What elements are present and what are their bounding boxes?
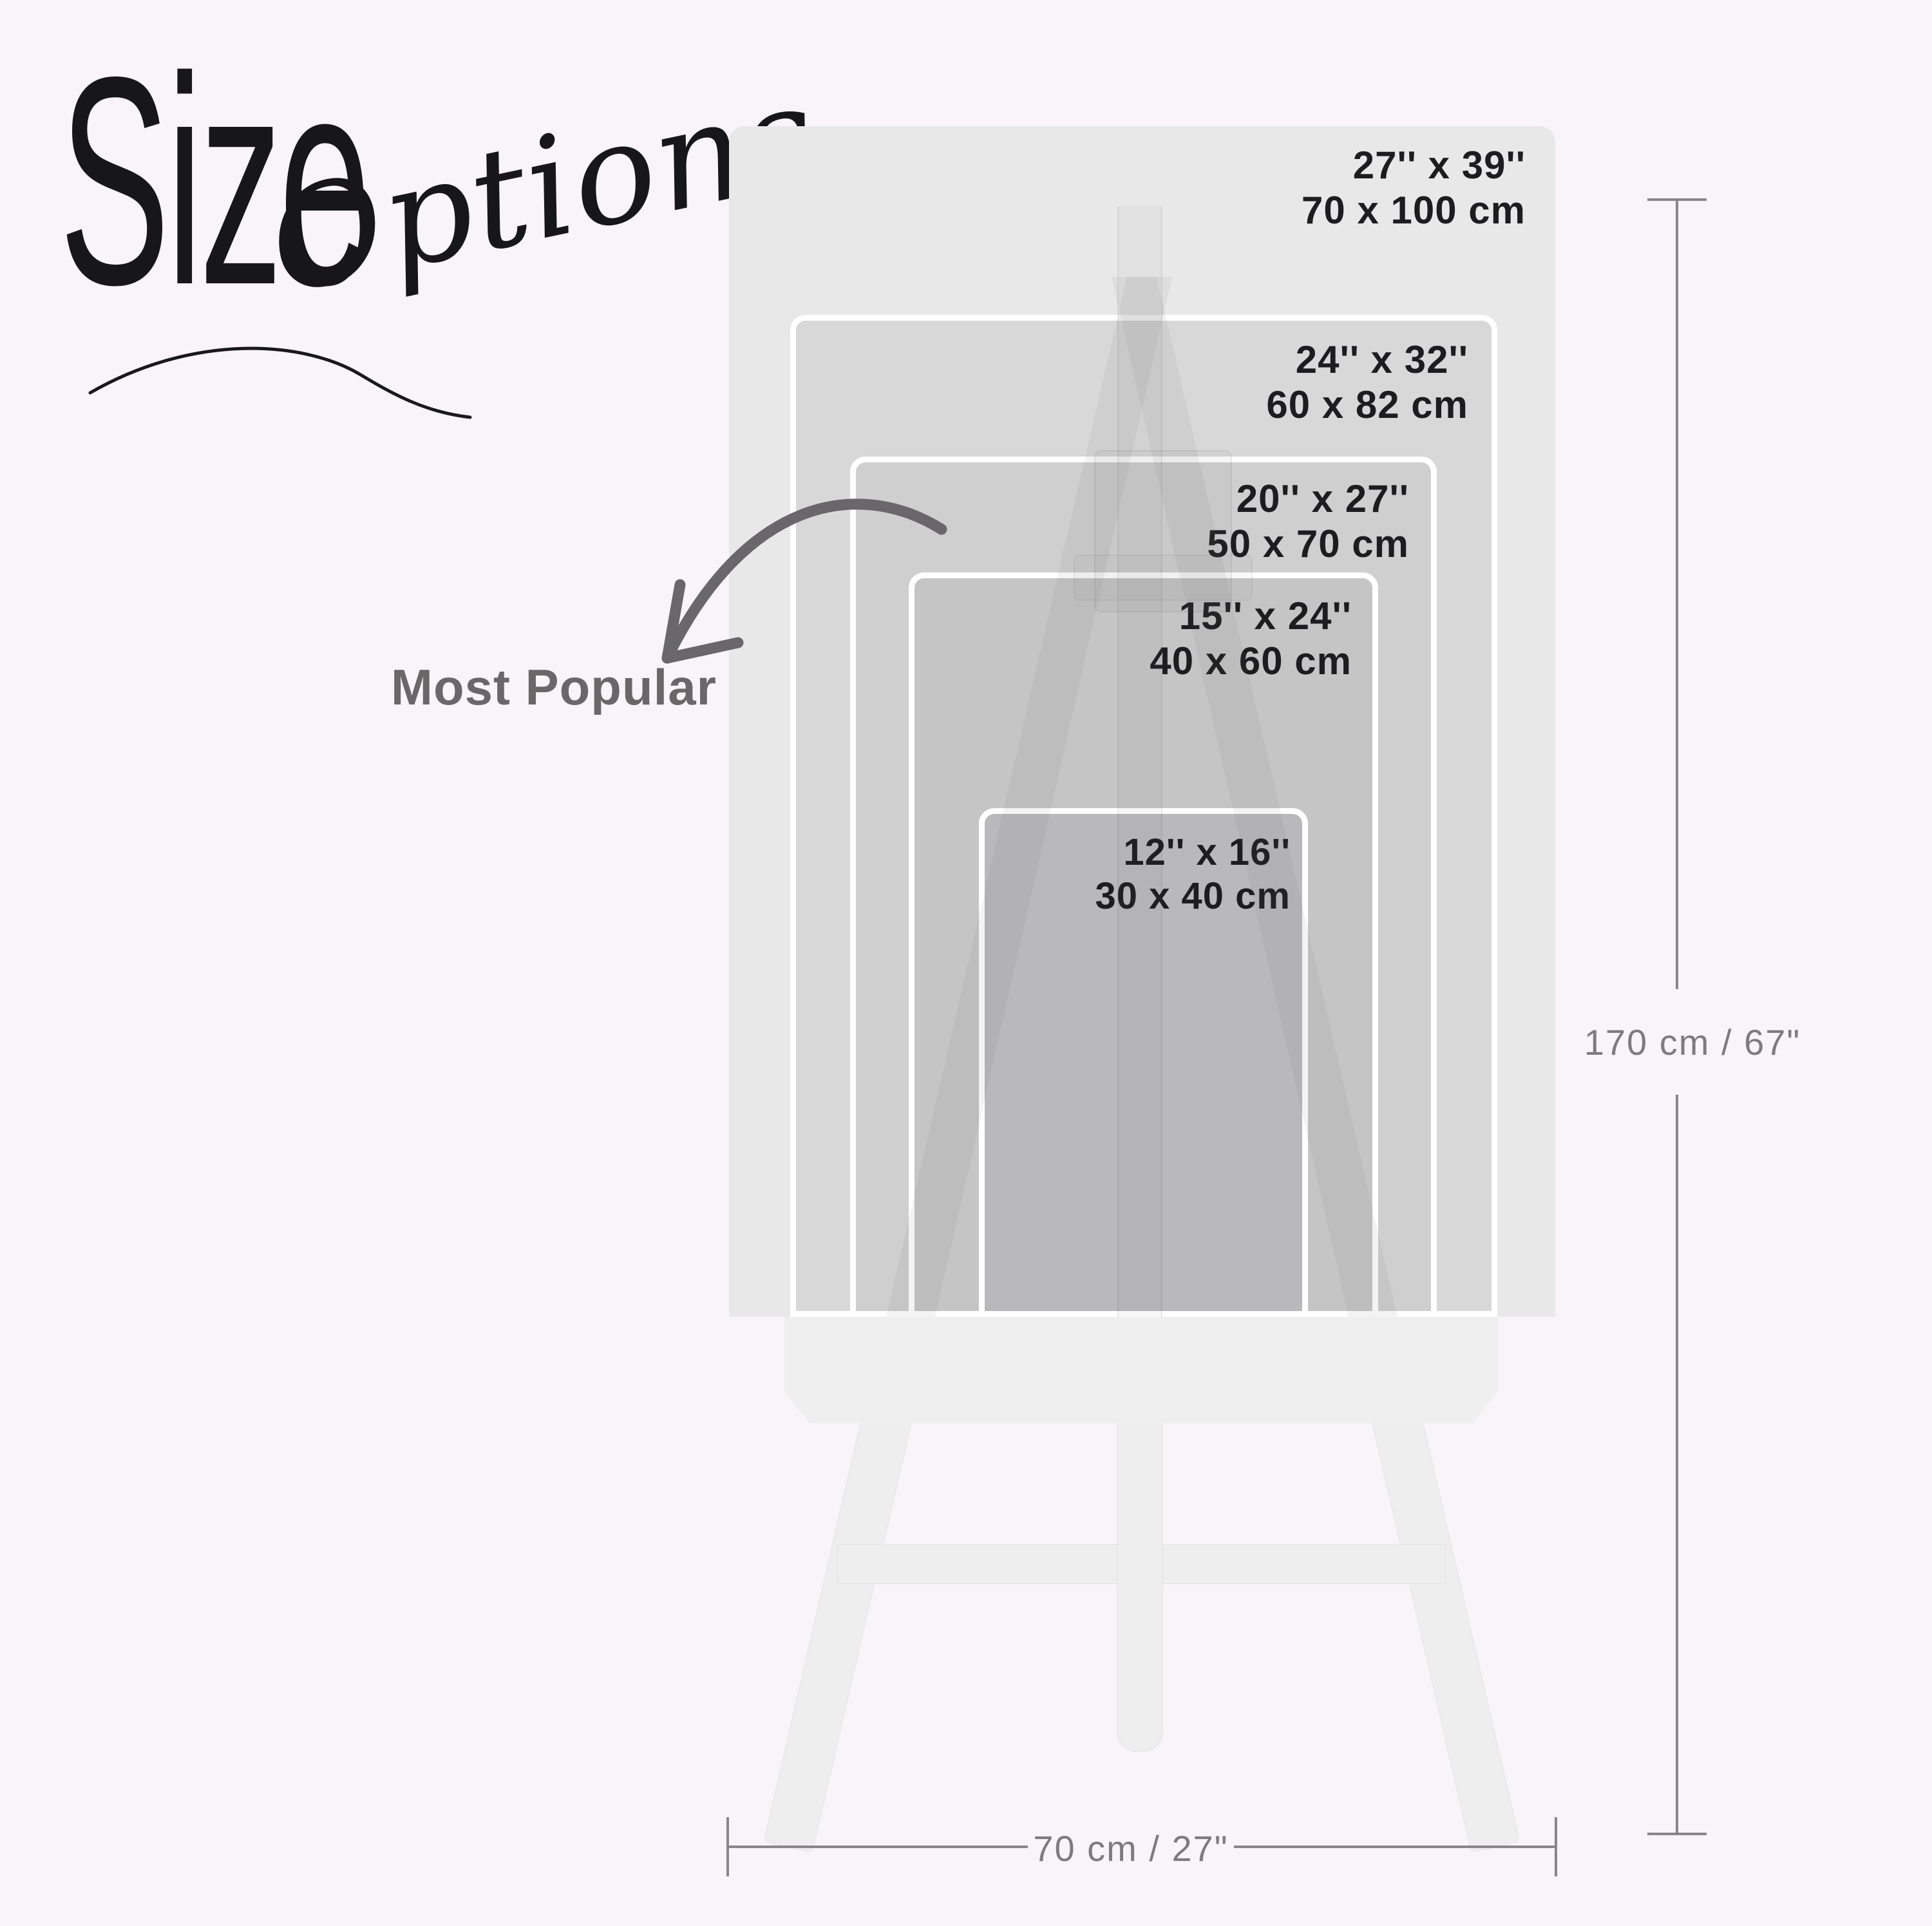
height-dim-cap-top (1647, 198, 1707, 201)
width-dim-cap-right (1555, 1817, 1557, 1876)
size-label-20x27-cm: 50 x 70 cm (1207, 522, 1409, 567)
height-dim-line-bottom (1676, 1095, 1678, 1834)
poster-rect-12x16: 12'' x 16'' 30 x 40 cm (979, 808, 1308, 1317)
size-label-12x16-inches: 12'' x 16'' (1095, 831, 1291, 874)
size-label-12x16: 12'' x 16'' 30 x 40 cm (1095, 831, 1291, 918)
size-label-24x32: 24'' x 32'' 60 x 82 cm (1266, 337, 1468, 428)
size-label-15x24-cm: 40 x 60 cm (1150, 639, 1352, 684)
width-dim-line-right (1234, 1846, 1557, 1848)
size-label-27x39: 27'' x 39'' 70 x 100 cm (1302, 143, 1526, 233)
most-popular-label: Most Popular (361, 658, 747, 717)
title-flourish (90, 348, 470, 417)
size-label-20x27: 20'' x 27'' 50 x 70 cm (1207, 477, 1409, 567)
width-dim-line-left (728, 1846, 1028, 1848)
size-options-infographic: Size Options 27'' x 39'' 70 x 100 cm 24'… (0, 0, 1932, 1926)
size-label-27x39-cm: 70 x 100 cm (1302, 188, 1526, 233)
width-dim-label: 70 cm / 27" (1028, 1827, 1234, 1869)
easel-leg-right (1364, 1377, 1520, 1853)
size-label-24x32-cm: 60 x 82 cm (1266, 382, 1468, 428)
size-label-15x24-inches: 15'' x 24'' (1150, 594, 1352, 639)
size-label-15x24: 15'' x 24'' 40 x 60 cm (1150, 594, 1352, 684)
width-dim-cap-left (726, 1817, 729, 1876)
height-dim-cap-bottom (1647, 1833, 1707, 1835)
easel-leg-left (764, 1377, 920, 1853)
height-dim-label: 170 cm / 67" (1577, 1021, 1808, 1063)
size-label-27x39-inches: 27'' x 39'' (1302, 143, 1526, 188)
easel-tray (784, 1317, 1498, 1423)
size-label-12x16-cm: 30 x 40 cm (1095, 874, 1291, 918)
easel-mast (1117, 1365, 1163, 1751)
size-label-20x27-inches: 20'' x 27'' (1207, 477, 1409, 522)
height-dim-line-top (1676, 200, 1678, 989)
size-label-24x32-inches: 24'' x 32'' (1266, 337, 1468, 382)
